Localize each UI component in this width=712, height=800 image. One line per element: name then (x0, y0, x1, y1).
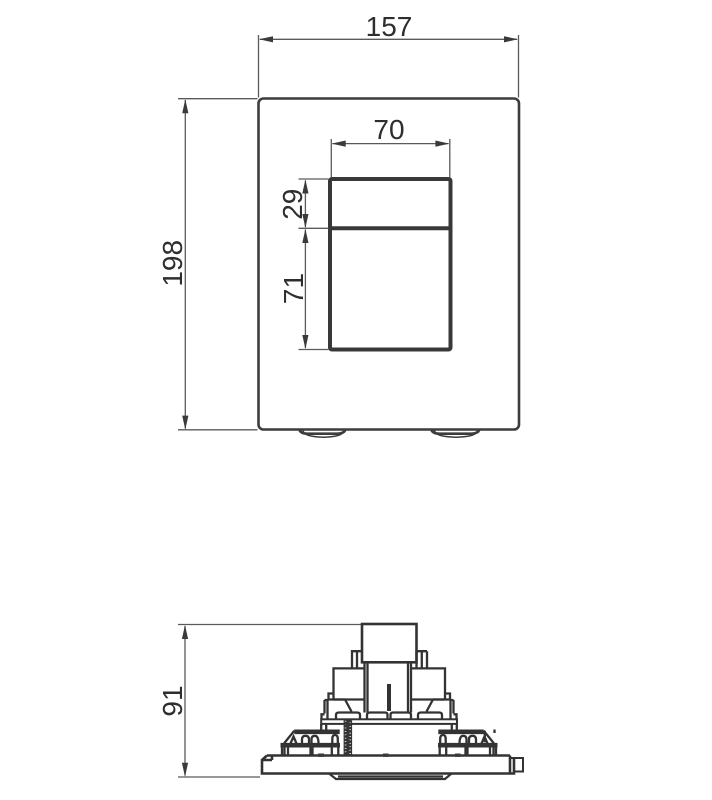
svg-text:157: 157 (366, 11, 413, 42)
svg-text:71: 71 (278, 273, 309, 304)
svg-text:91: 91 (157, 685, 188, 716)
svg-text:29: 29 (277, 189, 308, 220)
svg-text:198: 198 (157, 240, 188, 287)
svg-text:70: 70 (373, 114, 404, 145)
